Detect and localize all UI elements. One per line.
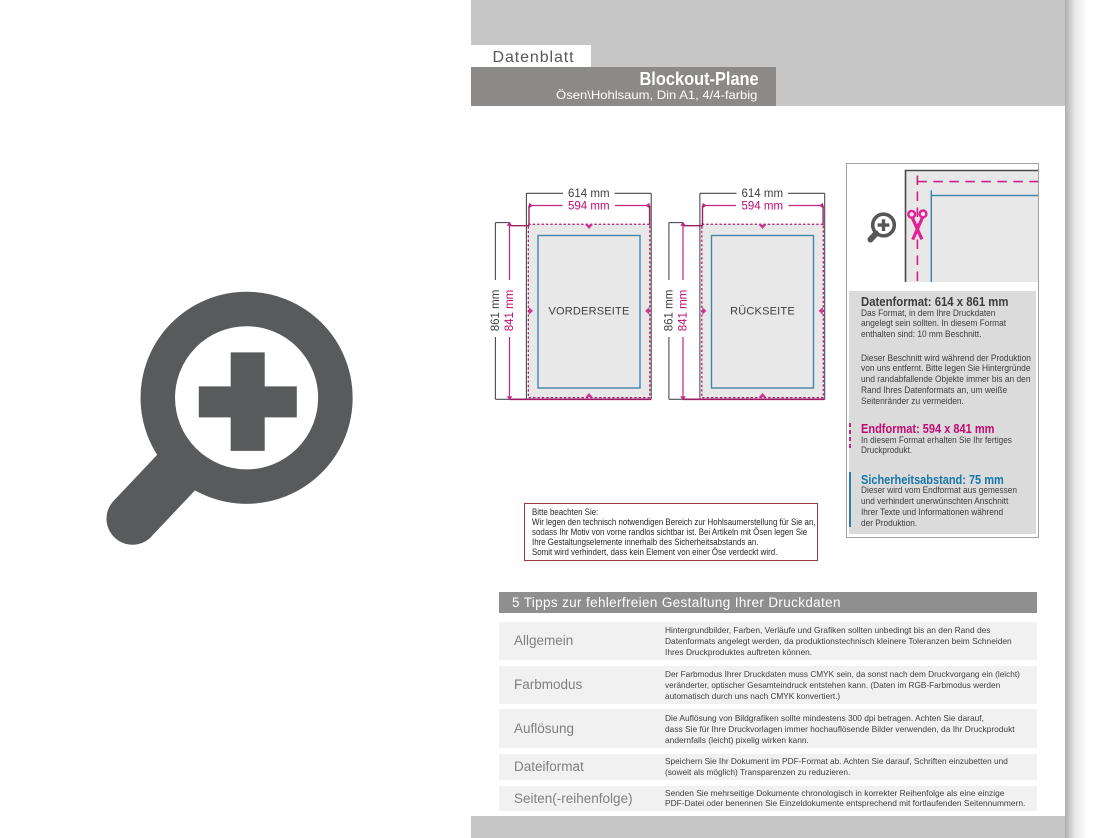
svg-text:614 mm: 614 mm <box>568 188 610 200</box>
svg-text:861 mm: 861 mm <box>664 290 676 332</box>
svg-text:861 mm: 861 mm <box>490 290 502 332</box>
svg-text:594 mm: 594 mm <box>742 200 784 212</box>
svg-text:614 mm: 614 mm <box>742 188 784 200</box>
svg-text:594 mm: 594 mm <box>568 200 610 212</box>
svg-text:841 mm: 841 mm <box>678 290 690 332</box>
svg-text:RÜCKSEITE: RÜCKSEITE <box>730 306 795 318</box>
svg-text:VORDERSEITE: VORDERSEITE <box>548 306 629 318</box>
svg-text:841 mm: 841 mm <box>504 290 516 332</box>
